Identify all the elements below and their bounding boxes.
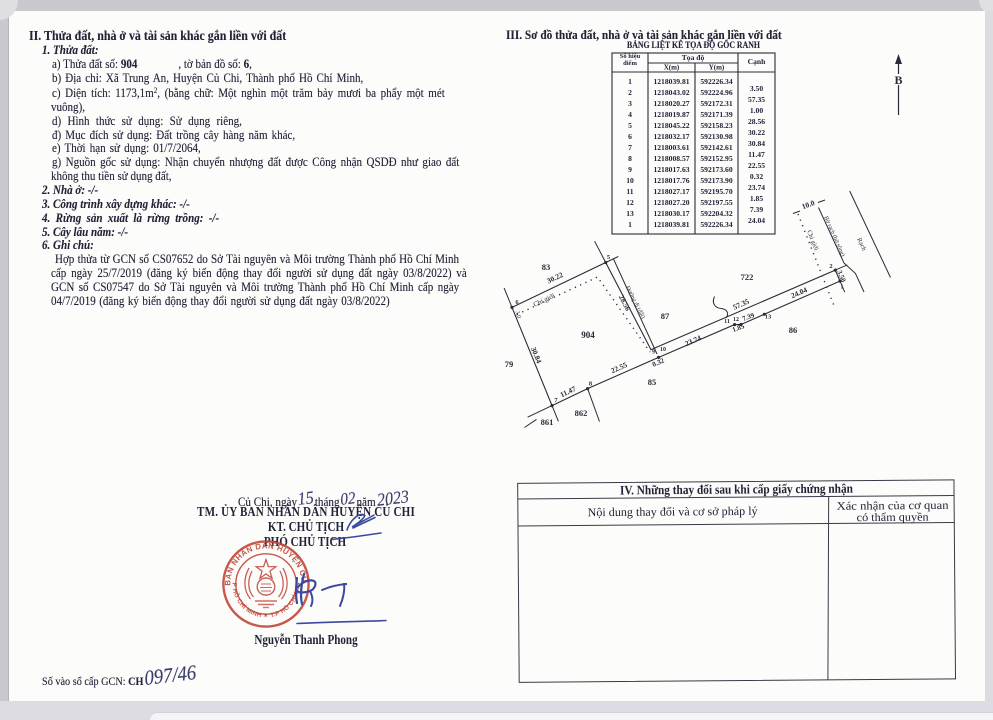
svg-text:B: B xyxy=(894,73,902,87)
svg-text:79: 79 xyxy=(505,359,514,369)
svg-text:có thẩm quyền: có thẩm quyền xyxy=(857,511,929,525)
svg-text:Chỉ giới: Chỉ giới xyxy=(805,229,819,252)
svg-text:9: 9 xyxy=(652,350,655,356)
svg-text:86: 86 xyxy=(789,325,798,335)
svg-text:Rạch: Rạch xyxy=(855,237,867,253)
svg-text:22.55: 22.55 xyxy=(609,360,628,375)
svg-text:Bờ rạch (bờ sông): Bờ rạch (bờ sông) xyxy=(822,215,846,258)
svg-text:7.39: 7.39 xyxy=(741,311,756,323)
svg-text:6: 6 xyxy=(515,299,519,306)
svg-text:23.74: 23.74 xyxy=(683,333,702,348)
svg-text:Nội dung thay đổi và cơ sở phá: Nội dung thay đổi và cơ sở pháp lý xyxy=(588,504,758,519)
svg-text:24.04: 24.04 xyxy=(789,285,808,300)
svg-text:IV. Những thay đổi sau khi cấp: IV. Những thay đổi sau khi cấp giấy chứn… xyxy=(620,481,854,498)
svg-text:Xác nhận của cơ quan: Xác nhận của cơ quan xyxy=(836,500,948,513)
svg-text:1: 1 xyxy=(840,284,843,291)
svg-text:722: 722 xyxy=(741,272,754,282)
svg-text:0.32: 0.32 xyxy=(651,356,666,368)
svg-text:904: 904 xyxy=(581,330,595,340)
svg-text:10.0: 10.0 xyxy=(800,198,816,211)
svg-text:57.35: 57.35 xyxy=(731,297,750,312)
svg-text:13: 13 xyxy=(765,314,772,321)
svg-text:85: 85 xyxy=(648,377,657,387)
svg-text:11.47: 11.47 xyxy=(559,384,578,399)
svg-text:87: 87 xyxy=(661,311,670,321)
svg-text:862: 862 xyxy=(575,408,588,418)
svg-text:12: 12 xyxy=(733,317,739,323)
svg-text:861: 861 xyxy=(541,417,554,427)
svg-text:10: 10 xyxy=(660,347,666,353)
svg-text:2: 2 xyxy=(829,263,832,270)
svg-text:83: 83 xyxy=(542,262,551,272)
svg-text:Chỉ giới: Chỉ giới xyxy=(532,292,556,309)
svg-text:3.50: 3.50 xyxy=(835,269,847,284)
svg-text:3,0: 3,0 xyxy=(514,310,522,319)
svg-text:11: 11 xyxy=(724,319,730,325)
